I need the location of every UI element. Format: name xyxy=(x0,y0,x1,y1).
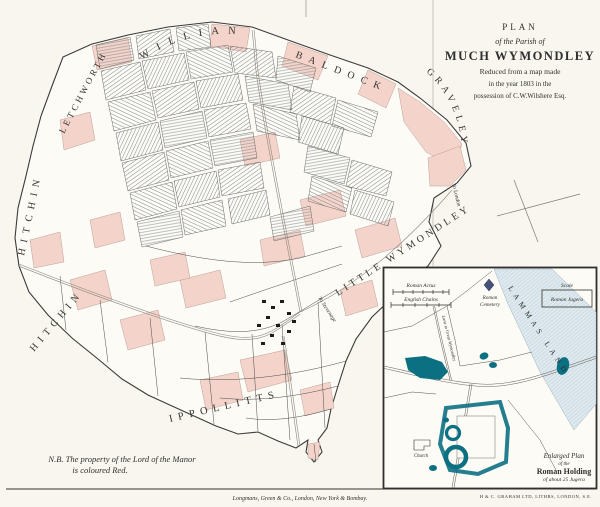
inset-caption3: Roman Holding xyxy=(537,467,591,476)
title-plan: PLAN xyxy=(502,22,538,32)
inset-caption4: of about 25 Jugera xyxy=(543,476,585,483)
title-parish: of the Parish of xyxy=(495,37,546,46)
title-block: PLAN of the Parish of MUCH WYMONDLEY Red… xyxy=(445,22,595,100)
inset-bar1-label: Roman Actus xyxy=(405,283,435,289)
note-line1: N.B. The property of the Lord of the Man… xyxy=(47,454,196,464)
inset-caption: Enlarged Plan of the Roman Holding of ab… xyxy=(537,452,591,483)
title-line5: in the year 1803 in the xyxy=(489,80,552,88)
publisher-credit: Longmans, Green & Co., London, New York … xyxy=(232,496,368,502)
inset-bar2-label: English Chains xyxy=(403,297,438,303)
map-canvas: WILLIAN GRAVELEY LETCHWORTH BALDOCK HITC… xyxy=(0,0,600,507)
inset-caption1: Enlarged Plan xyxy=(543,452,585,460)
title-name: MUCH WYMONDLEY xyxy=(445,49,595,63)
compass-icon xyxy=(497,180,580,242)
title-line4: Reduced from a map made xyxy=(480,67,561,76)
inset-cemetery-line1: Roman xyxy=(482,295,498,301)
lithographer-credit: H & C. GRAHAM LTD, LITHRS, LONDON, S.E. xyxy=(480,494,592,500)
title-line6: possession of C.W.Wilshere Esq. xyxy=(474,92,567,100)
manor-note: N.B. The property of the Lord of the Man… xyxy=(47,454,196,475)
inset-scale-unit: Roman Jugera xyxy=(550,297,583,303)
inset-scale-title: Scale xyxy=(561,283,573,289)
note-line2: is coloured Red. xyxy=(72,465,127,475)
inset-cemetery-line2: Cemetery xyxy=(480,302,501,308)
parish-map-sheet: WILLIAN GRAVELEY LETCHWORTH BALDOCK HITC… xyxy=(0,0,600,507)
inset-roman-plan: Church Roman Cemetery LAMMAS LAND Lane t… xyxy=(384,268,597,489)
label-to-london: To London xyxy=(450,183,462,207)
inset-church-label: Church xyxy=(414,454,429,459)
